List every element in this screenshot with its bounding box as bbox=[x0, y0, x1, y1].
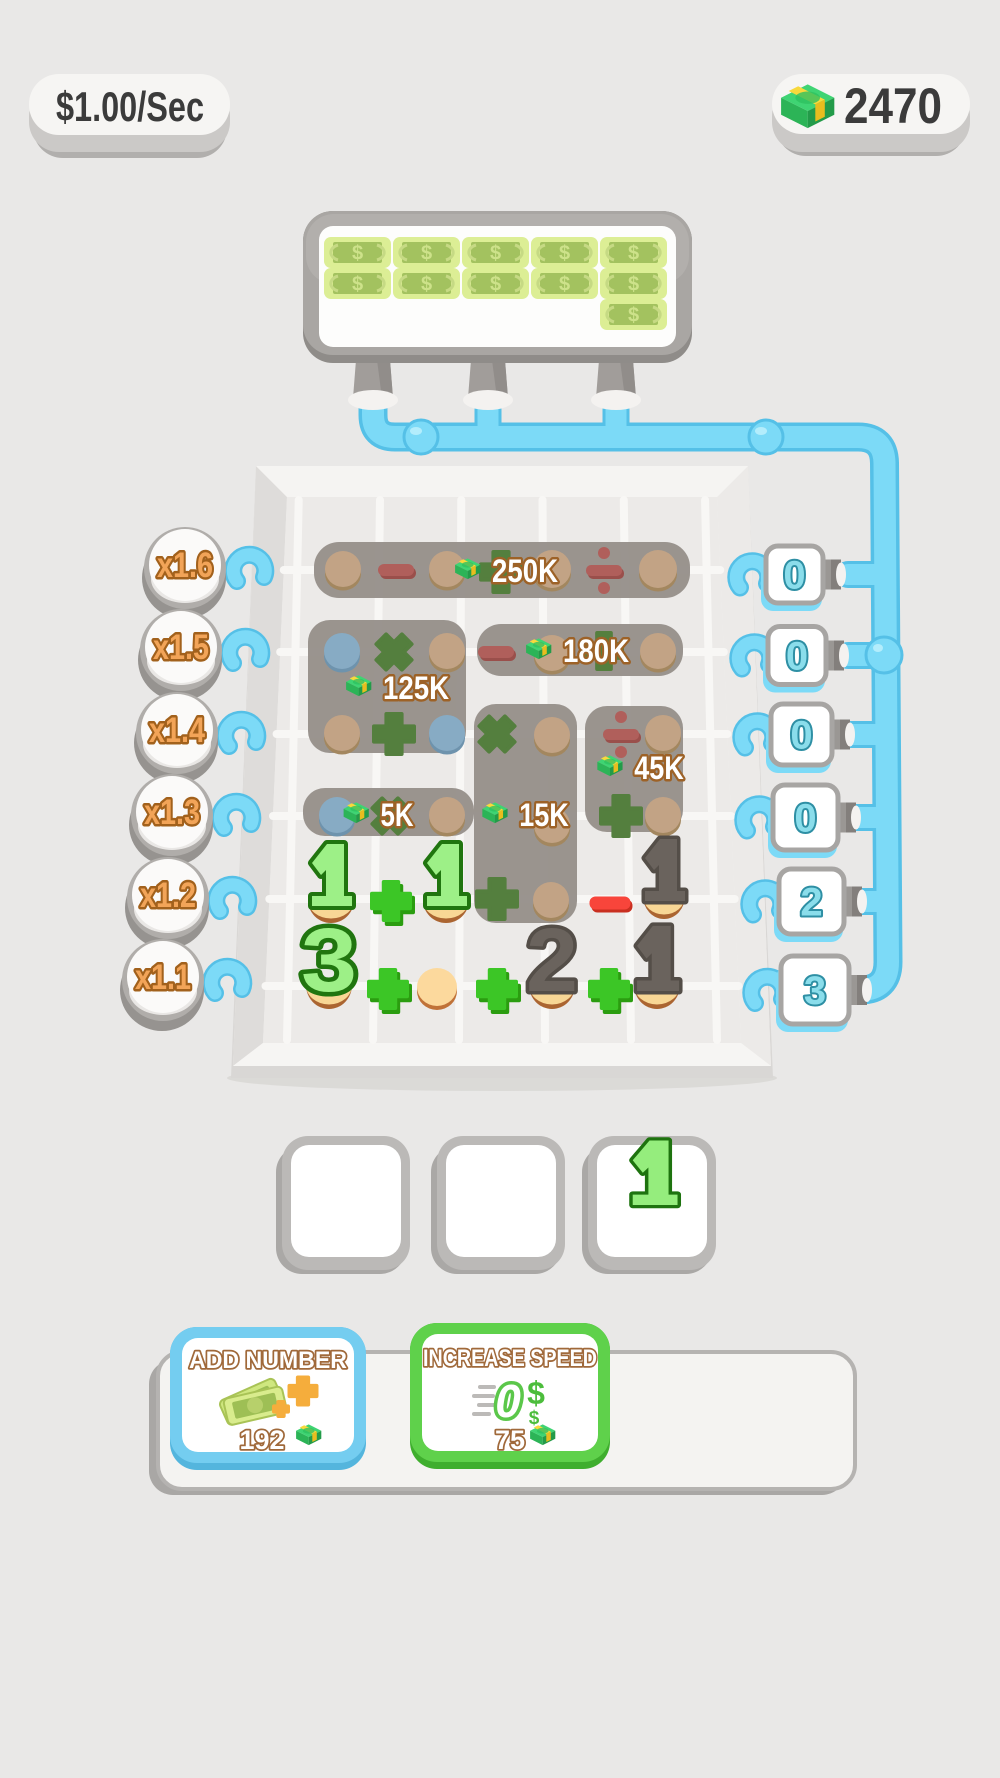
svg-text:x1.5: x1.5 bbox=[153, 628, 209, 667]
svg-text:0: 0 bbox=[495, 1375, 521, 1427]
svg-text:5K: 5K bbox=[381, 797, 414, 833]
svg-text:3: 3 bbox=[804, 969, 826, 1013]
svg-text:$: $ bbox=[421, 274, 432, 296]
svg-text:2: 2 bbox=[800, 881, 822, 925]
svg-text:250K: 250K bbox=[492, 553, 558, 589]
svg-text:125K: 125K bbox=[383, 670, 449, 706]
svg-text:$: $ bbox=[559, 243, 570, 265]
svg-text:$: $ bbox=[628, 274, 639, 296]
svg-text:0: 0 bbox=[790, 714, 812, 758]
svg-text:$1.00/Sec: $1.00/Sec bbox=[56, 83, 204, 130]
svg-text:$: $ bbox=[352, 274, 363, 296]
svg-text:0: 0 bbox=[794, 797, 816, 841]
svg-text:$: $ bbox=[628, 243, 639, 265]
svg-text:$: $ bbox=[628, 305, 639, 327]
svg-text:x1.4: x1.4 bbox=[149, 711, 205, 750]
svg-text:2470: 2470 bbox=[844, 78, 942, 134]
svg-text:$: $ bbox=[490, 274, 501, 296]
svg-text:192: 192 bbox=[239, 1425, 284, 1455]
svg-text:x1.3: x1.3 bbox=[144, 793, 200, 832]
svg-text:$: $ bbox=[559, 274, 570, 296]
svg-text:INCREASE SPEED: INCREASE SPEED bbox=[423, 1345, 597, 1372]
svg-text:75: 75 bbox=[495, 1425, 525, 1455]
svg-text:0: 0 bbox=[786, 635, 808, 679]
svg-text:$: $ bbox=[527, 1375, 545, 1411]
svg-text:2: 2 bbox=[526, 911, 578, 1011]
svg-text:3: 3 bbox=[301, 911, 357, 1011]
svg-text:15K: 15K bbox=[519, 797, 569, 833]
svg-text:45K: 45K bbox=[634, 750, 684, 786]
svg-text:$: $ bbox=[352, 243, 363, 265]
svg-text:0: 0 bbox=[783, 554, 805, 598]
svg-text:$: $ bbox=[490, 243, 501, 265]
svg-text:180K: 180K bbox=[563, 633, 629, 669]
svg-text:x1.2: x1.2 bbox=[140, 876, 196, 915]
svg-text:x1.1: x1.1 bbox=[135, 958, 191, 997]
svg-text:$: $ bbox=[421, 243, 432, 265]
svg-text:x1.6: x1.6 bbox=[157, 546, 213, 585]
svg-text:ADD NUMBER: ADD NUMBER bbox=[189, 1347, 347, 1374]
